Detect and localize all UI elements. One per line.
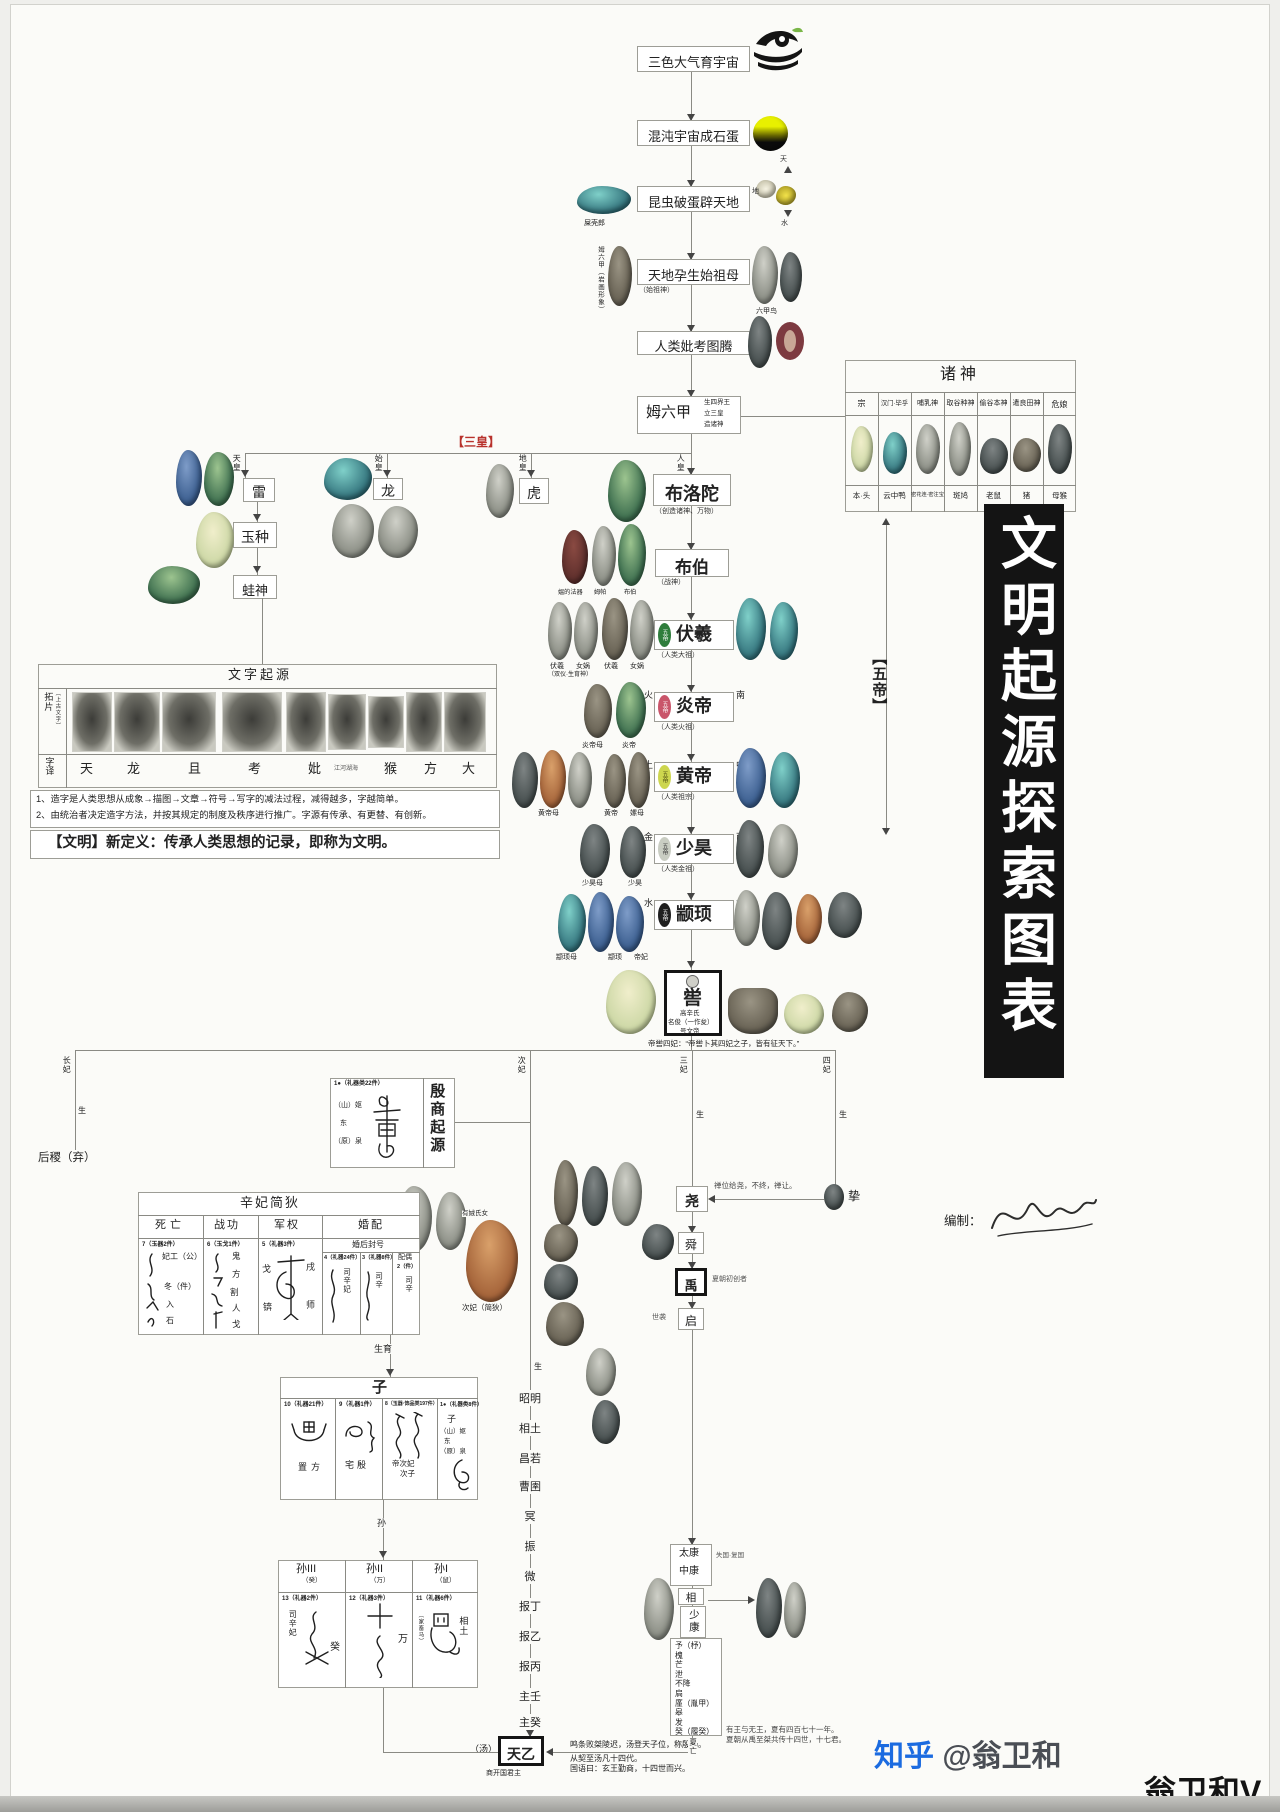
glyph-translation: 妣 xyxy=(308,762,321,777)
sun-connector-label: 孙 xyxy=(377,1518,386,1528)
gods-row-label: 云中鸭 xyxy=(878,492,911,501)
xinfei-col-army: 军权 xyxy=(274,1219,300,1232)
arrow-up-icon xyxy=(784,166,792,173)
shang-ancestor: 微 xyxy=(513,1568,547,1584)
oracle-glyph xyxy=(362,1270,374,1322)
zi-c8-caption: 次子 xyxy=(400,1470,415,1479)
node-ancestress-sub: （始祖神） xyxy=(639,287,674,295)
xia-note-2: 夏朝从禹至桀共传十四世，十七君。 xyxy=(726,1736,846,1745)
xia-descendant: 不降 xyxy=(675,1679,721,1689)
muliujia-note2: 立三皇 xyxy=(704,410,724,417)
gods-table-title: 诸神 xyxy=(940,366,980,384)
xinfei-war-item: 割 xyxy=(230,1288,239,1298)
xinfei-marriage-subheader: 婚后封号 xyxy=(352,1240,384,1249)
shun-label: 舜 xyxy=(685,1238,697,1252)
line xyxy=(262,598,263,665)
arrow-up-icon xyxy=(882,518,890,525)
script-note-2: 2、由统治者决定造字方法，并按其规定的制度及秩序进行推广。字源有传承、有更替、有… xyxy=(36,810,432,821)
rubbing-image xyxy=(406,692,442,752)
node-lei: 雷 xyxy=(243,478,275,502)
sun1-header: 孙I xyxy=(434,1563,448,1576)
huangdi-sub: （人类祖宗） xyxy=(657,794,699,802)
xia-descendants-box: 予（杼） 槐 芒 泄 不降 扃 廑（胤甲） 皋 发 癸（履癸） xyxy=(670,1638,722,1736)
dihuang-label: 地皇 xyxy=(518,454,527,472)
arrow-left-icon xyxy=(546,1748,553,1756)
sun3-header: 孙III xyxy=(296,1563,316,1576)
xinfei-death-item: 妃工（公） xyxy=(162,1252,202,1261)
xinfei-col-death: 死亡 xyxy=(155,1219,185,1232)
huangdi-caption: 嫘母 xyxy=(630,810,644,818)
xia-descendant: 芒 xyxy=(675,1660,721,1670)
xinfei-death-item: 入 xyxy=(166,1300,174,1309)
zhi-to-yao-line xyxy=(712,1199,824,1200)
translation-row-label: 字译 xyxy=(44,757,54,775)
shang-note-1: 鸣条败桀陵迟，汤登天子位，称殷汤。 xyxy=(570,1740,706,1749)
glyph-translation: 龙 xyxy=(127,762,140,777)
rubbing-image xyxy=(114,692,160,752)
line xyxy=(138,1238,420,1239)
node-insect: 昆虫破蛋辟天地 xyxy=(637,186,750,212)
huangdi-caption: 黄帝母 xyxy=(538,810,559,818)
line xyxy=(708,1600,748,1601)
line xyxy=(38,688,497,689)
arrow-down-icon xyxy=(386,1369,394,1376)
xinfei-m4-label: 司辛妃 xyxy=(342,1268,351,1294)
xinfei-death-tag: 7（玉器2件） xyxy=(142,1242,179,1249)
rubbing-image xyxy=(286,692,326,752)
shang-ancestor: 昌若 xyxy=(513,1450,547,1466)
gods-row-label: 斑鸠 xyxy=(944,492,977,501)
arrow-down-icon xyxy=(241,470,249,477)
node-shaokang: 少康 xyxy=(680,1606,706,1638)
oracle-glyph xyxy=(302,1608,332,1670)
node-bubo: 布伯 xyxy=(655,549,729,577)
wudi-badge-yandi: 五帝 xyxy=(658,695,671,719)
oracle-glyph xyxy=(208,1252,228,1330)
xia-descendant: 发 xyxy=(675,1718,721,1728)
signature-image xyxy=(984,1184,1100,1244)
node-stone-egg-label: 混沌宇宙成石蛋 xyxy=(648,129,739,144)
arrow-down-icon xyxy=(379,1551,387,1558)
line xyxy=(845,485,1076,486)
line xyxy=(66,688,67,788)
glyph-translation: 猴 xyxy=(384,762,397,777)
line xyxy=(278,1592,478,1593)
yuzhong-label: 玉种 xyxy=(241,529,269,545)
ku-label: 喾 xyxy=(683,988,702,1010)
sheng-label: 生 xyxy=(696,1110,704,1119)
zhihu-watermark: 知乎 @翁卫和 xyxy=(874,1740,1062,1775)
node-yuzhong: 玉种 xyxy=(233,522,277,548)
rubbing-row-label: 拓片 xyxy=(43,692,53,712)
xinfei-mate-label: 配偶 xyxy=(398,1254,412,1262)
arrow-down-icon xyxy=(784,210,792,217)
oracle-glyph xyxy=(450,1458,474,1492)
line xyxy=(383,1688,384,1752)
yao-label: 尧 xyxy=(685,1193,699,1209)
node-yao: 尧 xyxy=(676,1186,708,1212)
xinfei-army-tag: 5（礼器3件） xyxy=(262,1242,299,1249)
shang-ancestor: 冥 xyxy=(513,1508,547,1524)
oracle-glyph xyxy=(342,1418,378,1454)
glyph-translation: 天 xyxy=(80,762,93,777)
shang-ancestor: 报乙 xyxy=(513,1628,547,1644)
cosmic-egg-image xyxy=(753,116,788,151)
ring-artifact-image xyxy=(776,322,804,360)
sun2-header: 孙II xyxy=(366,1563,383,1576)
arrow-down-icon xyxy=(687,613,695,620)
yu-label: 禹 xyxy=(684,1278,697,1293)
arrow-down-icon xyxy=(253,514,261,521)
zi-title: 子 xyxy=(372,1379,387,1396)
fuxi-caption: 伏羲 xyxy=(550,663,564,671)
zi-c1-tag: 1●（礼器类8件） xyxy=(440,1402,482,1408)
gods-col-header: 哺乳神 xyxy=(911,400,944,408)
gods-row-label: 密花连·密注宝 xyxy=(911,493,944,499)
shang-ancestor: 报丙 xyxy=(513,1658,547,1674)
sun1-subheader: （鼠） xyxy=(436,1577,456,1584)
egg-water-label: 水 xyxy=(781,220,788,228)
civilization-definition: 【文明】新定义：传承人类思想的记录，即称为文明。 xyxy=(48,835,396,852)
huangdi-label: 黄帝 xyxy=(676,766,712,787)
beetle-caption: 屎壳郎 xyxy=(584,220,605,228)
xinfei-m3-label: 司辛 xyxy=(374,1272,383,1289)
rubbing-image xyxy=(328,694,366,750)
phoenix-logo-icon xyxy=(748,24,804,74)
photo-bottom-edge xyxy=(0,1796,1280,1812)
badge-text: 五帝 xyxy=(660,629,669,641)
node-qi: 启 xyxy=(678,1308,704,1330)
consort1-label: 长妃 xyxy=(62,1056,71,1074)
consort4-label: 四妃 xyxy=(822,1056,831,1074)
glyph-translation-small: 江河湖海 xyxy=(334,766,358,773)
fuxi-sub: （人类大祖） xyxy=(657,652,699,660)
badge-text: 五帝 xyxy=(660,909,669,921)
zhongkang-label: 中康 xyxy=(679,1566,699,1578)
badge-text: 五帝 xyxy=(660,771,669,783)
line xyxy=(335,1398,336,1500)
sheng-label: 生 xyxy=(839,1110,847,1119)
shang-ancestor: 昭明 xyxy=(513,1390,547,1406)
yinshang-glyph-label: （山）妪 xyxy=(334,1102,362,1110)
rubbing-row-sublabel: （上古文字） xyxy=(54,690,60,729)
ku-sub2: 名俊（一作夋） xyxy=(668,1019,714,1026)
zi-c8-caption: 帝次妃 xyxy=(392,1460,415,1469)
xinfei-army-item: 戈 xyxy=(262,1264,271,1274)
shang-note-3: 国语曰：玄王勤商，十四世而兴。 xyxy=(570,1764,690,1773)
shaohao-element-label: 金 xyxy=(644,832,653,842)
zi-c10-caption: 置方 xyxy=(298,1462,324,1472)
script-origin-title: 文字起源 xyxy=(228,668,292,683)
sun2-subheader: （万） xyxy=(370,1577,390,1584)
node-yu: 禹 xyxy=(675,1268,707,1296)
node-xiang: 相 xyxy=(678,1588,704,1605)
badge-text: 五帝 xyxy=(660,843,669,855)
zhuanxu-caption: 颛顼母 xyxy=(556,954,577,962)
node-ancestress-label: 天地孕生始祖母 xyxy=(648,268,739,283)
line xyxy=(382,1398,383,1500)
bubo-caption: 媪的法器 xyxy=(558,589,583,596)
shang-ancestor: 相土 xyxy=(513,1420,547,1436)
qi-note: 世袭 xyxy=(652,1314,666,1322)
oracle-glyph xyxy=(290,1418,328,1456)
arrow-down-icon xyxy=(527,470,535,477)
node-ancestress: 天地孕生始祖母 xyxy=(637,259,750,285)
yandi-caption: 炎帝 xyxy=(622,742,636,750)
bird-caption: 六甲鸟 xyxy=(756,308,777,316)
xinfei-war-item: 人 xyxy=(232,1304,241,1314)
gods-col-header: 宗 xyxy=(845,399,878,408)
oracle-glyph xyxy=(390,1412,430,1460)
line xyxy=(258,1215,259,1335)
oracle-glyph xyxy=(144,1252,160,1328)
jade-disc-image xyxy=(784,994,824,1034)
yandi-label: 炎帝 xyxy=(676,696,712,717)
sun3-subheader: （癸） xyxy=(302,1577,322,1584)
shaohao-caption: 少昊母 xyxy=(582,880,603,888)
xinfei-war-item: 方 xyxy=(232,1270,241,1280)
xinfei-col-war: 战功 xyxy=(214,1219,240,1232)
glyph-translation: 且 xyxy=(188,762,201,777)
gods-row-label: 猪 xyxy=(1010,492,1043,501)
wudi-badge-huangdi: 五帝 xyxy=(658,765,671,789)
shang-ancestor: 主壬 xyxy=(513,1688,547,1704)
xia-note-1: 有王与无王，夏有四百七十一年。 xyxy=(726,1726,839,1735)
gods-row-label: 老鼠 xyxy=(977,492,1010,501)
line xyxy=(835,1050,836,1188)
script-note-1: 1、造字是人类思想从成象→描图→文章→符号→写字的减法过程，减得越多，字越简单。 xyxy=(36,794,404,805)
line xyxy=(75,1050,76,1150)
bubo-caption: 布伯 xyxy=(624,589,636,596)
shang-ancestor: 振 xyxy=(513,1538,547,1554)
renhuang-label: 人皇 xyxy=(676,454,685,472)
sanhuang-branch-line xyxy=(245,453,692,454)
node-long: 龙 xyxy=(373,478,403,500)
zi-c1-caption: 子 xyxy=(447,1414,456,1424)
sun-c11-side: （家畜马） xyxy=(417,1612,423,1645)
shihuang-label: 始皇 xyxy=(374,454,383,472)
arrow-down-icon xyxy=(687,893,695,900)
xinfei-army-item: 师 xyxy=(306,1300,315,1310)
yinshang-origin-title: 殷商起源 xyxy=(428,1083,445,1155)
arrow-down-icon xyxy=(687,827,695,834)
gods-row-label: 本·头 xyxy=(845,492,878,501)
zhuanxu-label: 颛顼 xyxy=(676,904,712,925)
buluotuo-label: 布洛陀 xyxy=(665,484,719,504)
node-hu: 虎 xyxy=(519,478,549,504)
xia-descendant: 扃 xyxy=(675,1689,721,1699)
node-totem-label: 人类妣考图腾 xyxy=(654,339,732,354)
tianyi-sub: 商开国君主 xyxy=(486,1770,521,1778)
line xyxy=(412,1560,413,1688)
fuxi-caption: 伏羲 xyxy=(604,663,618,671)
arrow-down-icon xyxy=(687,685,695,692)
xia-fall-label: 夏亡 xyxy=(688,1738,697,1755)
line xyxy=(138,1215,420,1216)
ku-badge-icon xyxy=(686,975,699,988)
node-cosmos-label: 三色大气育宇宙 xyxy=(648,55,739,70)
zi-c10-tag: 10（礼器21件） xyxy=(284,1402,327,1409)
chart-canvas: 三色大气育宇宙 混沌宇宙成石蛋 昆虫破蛋辟天地 天地孕生始祖母 （始祖神） 人类… xyxy=(0,0,1280,1812)
oracle-glyph xyxy=(366,1602,394,1678)
xinfei-army-item: 戌 xyxy=(306,1262,315,1272)
xia-descendant: 廑（胤甲） xyxy=(675,1699,721,1709)
arrow-down-icon xyxy=(882,828,890,835)
abdication-note: 禅位给尧，不终，禅让。 xyxy=(714,1182,797,1191)
xia-descendant: 癸（履癸） xyxy=(675,1727,721,1737)
sun-c13-tag: 13（礼器2件） xyxy=(282,1596,322,1603)
line xyxy=(38,754,497,755)
glyph-translation: 考 xyxy=(248,762,261,777)
wudi-bracket-label: 【五帝】 xyxy=(870,650,887,714)
egg-earth-label: 地 xyxy=(752,188,759,196)
line xyxy=(203,1215,204,1335)
xia-descendant: 泄 xyxy=(675,1670,721,1680)
xinfei-title: 辛妃简狄 xyxy=(240,1196,300,1211)
wudi-badge-fuxi: 五帝 xyxy=(658,623,671,647)
arrow-down-icon xyxy=(687,961,695,968)
fuxi-caption: 女娲 xyxy=(630,663,644,671)
credit-label: 编制： xyxy=(944,1214,982,1228)
zhuanxu-caption: 帝妃 xyxy=(634,954,648,962)
yu-note: 夏朝初创者 xyxy=(712,1276,747,1284)
egg-sky-label: 天 xyxy=(780,156,787,164)
badge-text: 五帝 xyxy=(660,701,669,713)
zi-c1-caption: （原）泉 xyxy=(440,1448,466,1455)
zhihu-handle: @翁卫和 xyxy=(942,1740,1061,1773)
glyph-translation: 方 xyxy=(424,762,437,777)
sun-c13b-label: 癸 xyxy=(330,1642,340,1654)
muliujia-note3: 造诸神 xyxy=(704,421,724,428)
arrow-right-icon xyxy=(748,1596,755,1604)
consort3-label: 三妃 xyxy=(679,1056,688,1074)
jiandi-caption: 次妃（简狄） xyxy=(462,1304,507,1313)
zi-c1-caption: 东 xyxy=(444,1438,451,1445)
gods-col-header: 遣良田神 xyxy=(1010,400,1043,408)
zhi-label: 挚 xyxy=(848,1190,860,1204)
xinfei-war-tag: 6（玉戈1件） xyxy=(207,1242,244,1249)
xia-descendant: 皋 xyxy=(675,1708,721,1718)
oracle-totem-glyph xyxy=(366,1090,408,1164)
line xyxy=(423,1078,424,1168)
zhihu-logo-text: 知乎 xyxy=(874,1740,934,1773)
wudi-badge-zhuanxu: 五帝 xyxy=(658,903,671,927)
rubbing-image xyxy=(444,692,486,752)
line xyxy=(548,1752,693,1753)
shaohao-sub: （人类金祖） xyxy=(657,866,699,874)
xinfei-m2-tag: 2（件） xyxy=(397,1264,417,1270)
ku-sub1: 高辛氏 xyxy=(680,1010,700,1017)
gods-col-header: 汉门·毕乎 xyxy=(878,400,911,407)
muliujia-label: 姆六甲 xyxy=(646,404,691,421)
xinfei-war-item: 戈 xyxy=(232,1320,241,1330)
connector-to-gods-table xyxy=(741,416,845,417)
shaokang-label: 少康 xyxy=(686,1609,700,1634)
rubbing-image xyxy=(368,696,404,748)
line xyxy=(280,1398,478,1399)
rubbing-image xyxy=(222,692,282,752)
ku-sub3: 号文帝 xyxy=(680,1028,700,1035)
shang-note-2: 从契至汤凡十四代。 xyxy=(570,1754,642,1763)
gods-row-label: 母猴 xyxy=(1043,492,1076,501)
sanhuang-tag: 【三皇】 xyxy=(452,436,500,450)
consort-branch-line xyxy=(75,1050,835,1051)
glyph-translation: 大 xyxy=(462,762,475,777)
line xyxy=(845,392,1076,393)
node-buluotuo: 布洛陀 xyxy=(653,474,731,506)
yousong-caption: 有娀氏女 xyxy=(462,1210,488,1217)
bubo-caption: 姆帕 xyxy=(594,589,606,596)
gods-col-header: 偷谷本神 xyxy=(977,400,1010,408)
ku-quote: 帝喾四妃：“帝喾卜其四妃之子，皆有征天下。” xyxy=(648,1040,799,1049)
yinshang-glyph-label: （原）泉 xyxy=(334,1138,362,1146)
zhuanxu-element-label: 水 xyxy=(644,898,653,908)
shang-ancestor: 报丁 xyxy=(513,1598,547,1614)
node-washen: 蛙神 xyxy=(233,575,277,599)
gods-col-header: 取谷种神 xyxy=(944,400,977,408)
xinfei-col-marriage: 婚配 xyxy=(358,1219,384,1232)
shengyu-label: 生育 xyxy=(374,1344,392,1354)
title-banner: 文明起源探索图表 xyxy=(984,504,1064,1078)
hu-label: 虎 xyxy=(527,485,541,501)
fuxi-caption: 女娲 xyxy=(576,663,590,671)
fuxi-note: （双仪·生育神） xyxy=(548,672,592,679)
zi-c8-tag: 8（玉器·饰品类197件） xyxy=(385,1402,438,1408)
zi-c9-tag: 9（礼器1件） xyxy=(339,1402,376,1409)
muliujia-rock-caption: 姆六甲（岩画形象） xyxy=(596,246,603,310)
xinfei-army-item: 锛 xyxy=(263,1302,272,1312)
buluotuo-sub: （创造诸神、万物） xyxy=(655,508,718,516)
shaohao-label: 少昊 xyxy=(676,838,712,859)
qi-label: 启 xyxy=(685,1314,697,1328)
arrow-left-icon xyxy=(708,1195,715,1203)
yandi-caption: 炎帝母 xyxy=(582,742,603,750)
line xyxy=(360,1252,361,1335)
rat-glyph xyxy=(426,1610,460,1658)
xinfei-war-item: 鬼 xyxy=(232,1252,241,1262)
line xyxy=(392,1252,393,1335)
line xyxy=(845,415,1076,416)
line xyxy=(322,1215,323,1335)
node-totem: 人类妣考图腾 xyxy=(637,331,750,355)
gods-col-header: 危娘 xyxy=(1043,400,1076,409)
xinfei-death-item: 石 xyxy=(166,1316,174,1325)
fuxi-label: 伏羲 xyxy=(676,624,712,645)
sheng-label: 生 xyxy=(534,1362,542,1371)
xinfei-death-item: 冬（件） xyxy=(164,1282,196,1291)
node-insect-label: 昆虫破蛋辟天地 xyxy=(648,195,739,210)
consort2-label: 次妃 xyxy=(517,1056,526,1074)
long-label: 龙 xyxy=(381,483,395,499)
yandi-sub: （人类火祖） xyxy=(657,724,699,732)
shang-ancestor: 主癸 xyxy=(513,1714,547,1730)
zi-c9-caption: 宅殷 xyxy=(345,1460,369,1470)
yinshang-tag: 1●（礼器类22件） xyxy=(334,1081,384,1088)
yandi-element-label: 火 xyxy=(644,690,653,700)
shaohao-caption: 少昊 xyxy=(628,880,642,888)
taikang-label: 太康 xyxy=(679,1548,699,1560)
xinfei-m2-label: 司辛 xyxy=(404,1276,413,1293)
bubo-sub: （战神） xyxy=(657,579,685,587)
zhuanxu-caption: 颛顼 xyxy=(608,954,622,962)
node-stone-egg: 混沌宇宙成石蛋 xyxy=(637,120,750,146)
xinfei-m4-tag: 4（礼器24件） xyxy=(324,1255,361,1261)
shang-ancestor: 曹圉 xyxy=(513,1478,547,1494)
line xyxy=(322,1252,420,1253)
zi-c1-caption: （山）妪 xyxy=(440,1428,466,1435)
rubbing-image xyxy=(162,692,216,752)
houji-label: 后稷（弃） xyxy=(38,1152,96,1165)
